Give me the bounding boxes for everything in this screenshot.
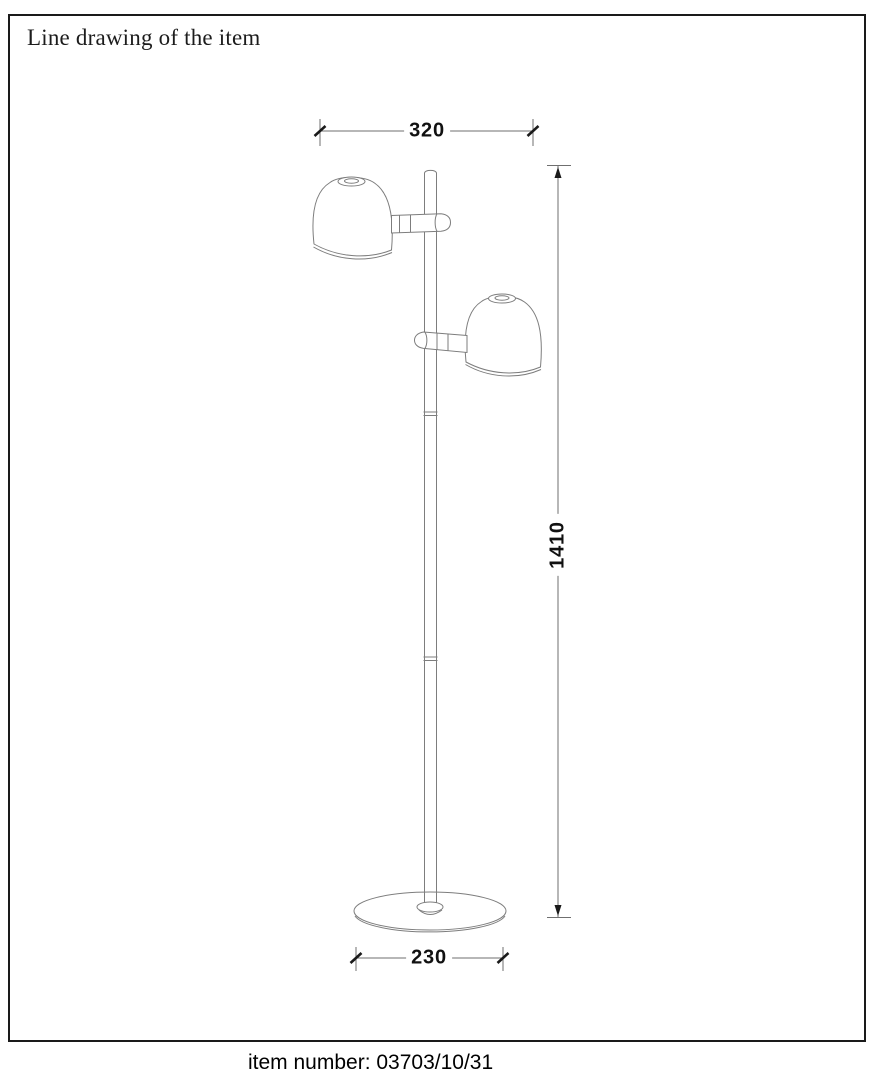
line-drawing-svg bbox=[0, 0, 884, 1082]
base-collar bbox=[417, 902, 443, 912]
footer-item-number: item number: 03703/10/31 bbox=[248, 1050, 493, 1076]
dim-label-height: 1410 bbox=[547, 514, 570, 576]
dim-label-width-top: 320 bbox=[404, 120, 450, 143]
arm-upper bbox=[392, 214, 451, 233]
pole-joint-upper bbox=[424, 412, 438, 416]
lamp-head-lower bbox=[465, 294, 541, 376]
arm-lower bbox=[415, 332, 468, 353]
dim-label-base-diameter: 230 bbox=[406, 947, 452, 970]
lamp-head-upper bbox=[313, 177, 392, 259]
pole bbox=[425, 170, 437, 906]
pole-joint-lower bbox=[424, 657, 438, 661]
base-disc bbox=[354, 880, 506, 932]
